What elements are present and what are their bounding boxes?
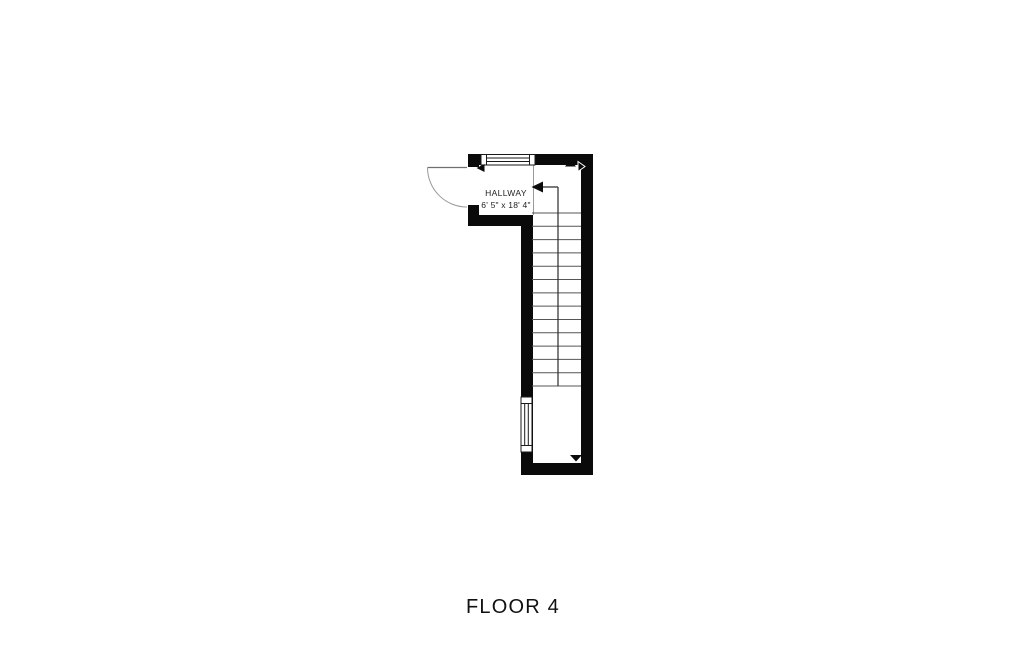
floor-plan: HALLWAY 6' 5" x 18' 4" xyxy=(428,154,594,475)
window-frame xyxy=(481,155,535,166)
hallway-left-wall-upper xyxy=(468,154,479,167)
window-frame xyxy=(521,397,532,452)
staircase xyxy=(532,182,582,387)
right-wall xyxy=(581,154,593,475)
room-label-hallway: HALLWAY 6' 5" x 18' 4" xyxy=(481,188,530,210)
floor-plan-canvas: HALLWAY 6' 5" x 18' 4" FLOOR 4 xyxy=(0,0,1024,659)
left-window xyxy=(521,397,532,452)
opening-arrow-down-icon xyxy=(570,455,582,462)
room-dimensions: 6' 5" x 18' 4" xyxy=(481,200,530,210)
stair-treads xyxy=(532,213,581,386)
door-swing-arc xyxy=(428,168,468,208)
floor-title: FLOOR 4 xyxy=(466,596,560,618)
top-window xyxy=(481,155,535,166)
hallway-left-wall-lower xyxy=(468,205,479,226)
floorplan-page: HALLWAY 6' 5" x 18' 4" FLOOR 4 xyxy=(0,0,1024,659)
entry-door xyxy=(428,168,468,208)
room-name: HALLWAY xyxy=(485,188,527,198)
